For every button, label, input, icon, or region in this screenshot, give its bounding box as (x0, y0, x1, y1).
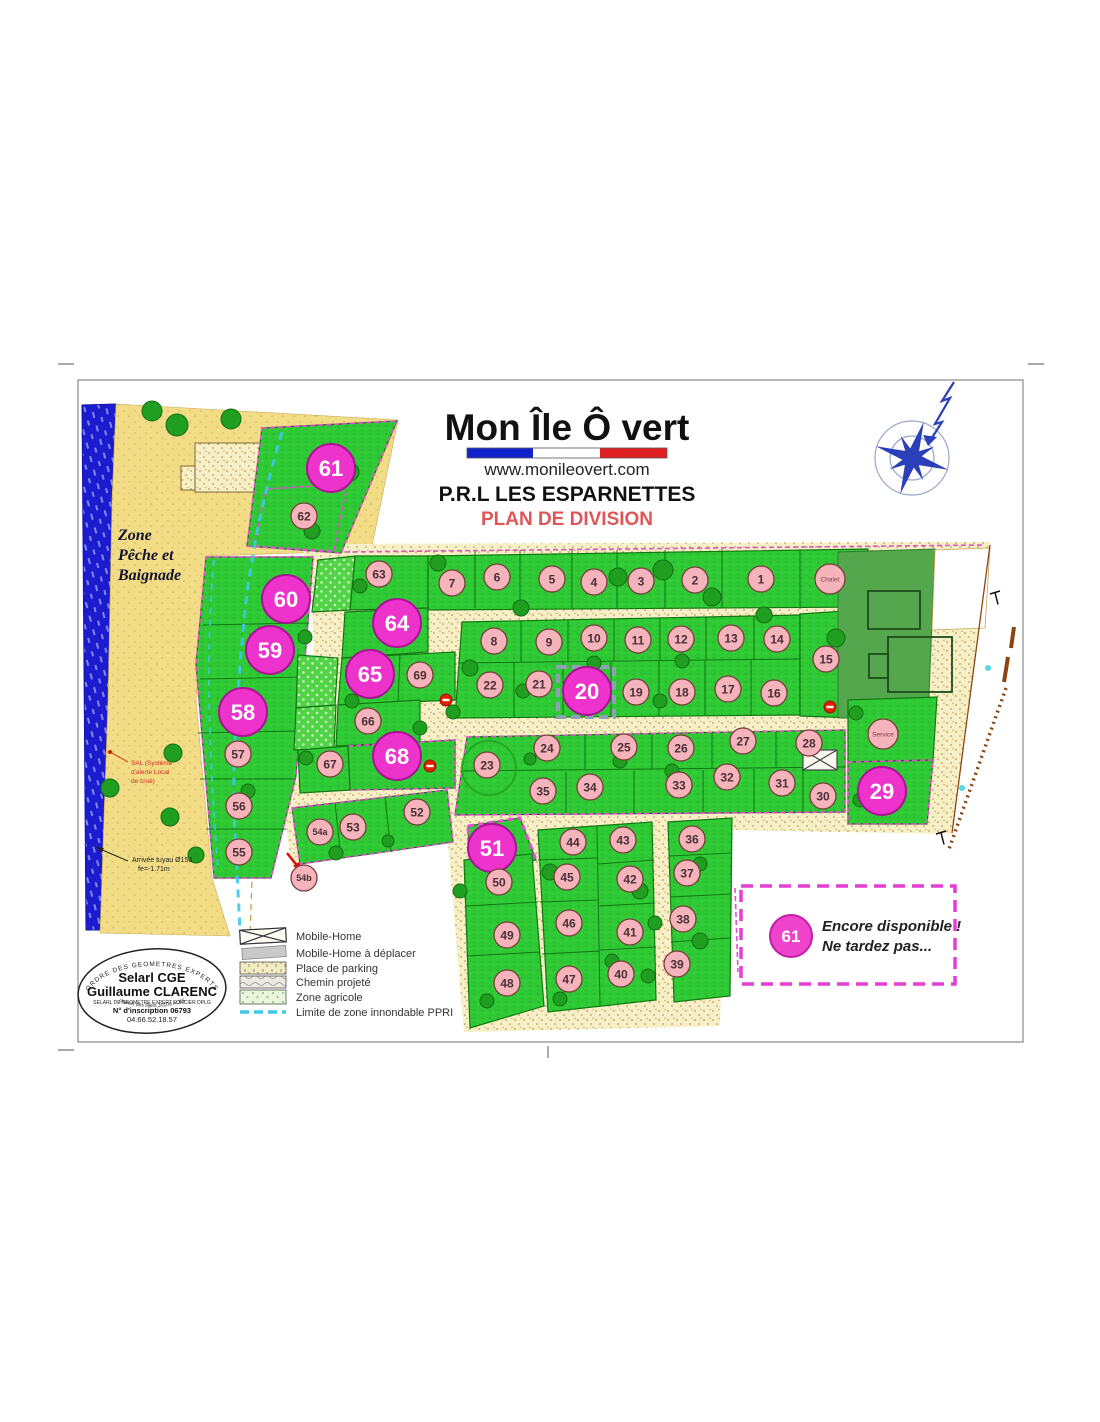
lot-57[interactable]: 57 (225, 741, 251, 767)
svg-text:29: 29 (870, 779, 894, 804)
available-lot-number: 61 (782, 927, 801, 946)
lot-50[interactable]: 50 (486, 869, 512, 895)
lot-65[interactable]: 65 (346, 650, 394, 698)
subtitle-label: P.R.L LES ESPARNETTES (439, 483, 696, 506)
svg-text:10: 10 (587, 632, 601, 646)
tree-icon (298, 630, 312, 644)
tree-icon (675, 654, 689, 668)
svg-text:41: 41 (623, 926, 637, 940)
lot-36[interactable]: 36 (679, 826, 705, 852)
legend-label: Chemin projeté (296, 977, 371, 989)
svg-text:62: 62 (297, 510, 311, 524)
lot-19[interactable]: 19 (623, 679, 649, 705)
legend-label: Mobile-Home (296, 931, 361, 943)
lot-60[interactable]: 60 (262, 575, 310, 623)
tree-icon (756, 607, 772, 623)
svg-text:Selarl CGE: Selarl CGE (118, 970, 186, 985)
lot-25[interactable]: 25 (611, 734, 637, 760)
lot-4[interactable]: 4 (581, 569, 607, 595)
svg-text:50: 50 (492, 876, 506, 890)
lot-10[interactable]: 10 (581, 625, 607, 651)
availability-box[interactable]: 61 Encore disponible ! Ne tardez pas... (741, 886, 961, 984)
lot-16[interactable]: 16 (761, 680, 787, 706)
svg-text:30: 30 (816, 790, 830, 804)
lot-58[interactable]: 58 (219, 688, 267, 736)
svg-text:58: 58 (231, 700, 255, 725)
svg-text:27: 27 (736, 735, 750, 749)
legend-swatch-chemin (240, 976, 286, 988)
svg-text:6: 6 (494, 571, 501, 585)
availability-line1: Encore disponible ! (822, 918, 961, 935)
plan-label: PLAN DE DIVISION (481, 509, 653, 530)
lot-54a[interactable]: 54a (307, 819, 333, 845)
svg-text:65: 65 (358, 662, 382, 687)
tree-icon (101, 779, 119, 797)
lot-8[interactable]: 8 (481, 628, 507, 654)
tree-icon (641, 969, 655, 983)
lot-2[interactable]: 2 (682, 567, 708, 593)
tree-icon (692, 933, 708, 949)
svg-text:17: 17 (721, 683, 735, 697)
tree-icon (827, 629, 845, 647)
svg-text:56: 56 (232, 800, 246, 814)
legend-swatch-parking (240, 962, 286, 974)
svg-text:54b: 54b (296, 873, 312, 883)
agri-patch-3 (294, 705, 336, 750)
road-sign-icon (440, 694, 452, 706)
svg-text:1: 1 (758, 573, 765, 587)
svg-text:21: 21 (532, 678, 546, 692)
lot-33[interactable]: 33 (666, 772, 692, 798)
lot-55[interactable]: 55 (226, 839, 252, 865)
lot-59[interactable]: 59 (246, 626, 294, 674)
lot-47[interactable]: 47 (556, 966, 582, 992)
lot-38[interactable]: 38 (670, 906, 696, 932)
svg-text:57: 57 (231, 748, 245, 762)
svg-text:de crue): de crue) (131, 778, 155, 785)
lot-29[interactable]: 29 (858, 767, 906, 815)
svg-text:67: 67 (323, 758, 337, 772)
tree-icon (166, 414, 188, 436)
lot-53[interactable]: 53 (340, 814, 366, 840)
lot-1[interactable]: 1 (748, 566, 774, 592)
svg-text:60: 60 (274, 587, 298, 612)
svg-text:39: 39 (670, 958, 684, 972)
svg-text:Guillaume CLARENC: Guillaume CLARENC (87, 984, 218, 999)
tree-icon (430, 555, 446, 571)
lot-37[interactable]: 37 (674, 860, 700, 886)
lot-35[interactable]: 35 (530, 778, 556, 804)
svg-text:2: 2 (692, 574, 699, 588)
lot-34[interactable]: 34 (577, 774, 603, 800)
svg-text:49: 49 (500, 929, 514, 943)
lot-52[interactable]: 52 (404, 799, 430, 825)
svg-text:18: 18 (675, 686, 689, 700)
svg-text:63: 63 (372, 568, 386, 582)
tree-icon (653, 560, 673, 580)
svg-text:14: 14 (770, 633, 784, 647)
tree-icon (382, 835, 394, 847)
svg-text:Chalet: Chalet (821, 577, 840, 584)
lot-44[interactable]: 44 (560, 829, 586, 855)
legend-label: Mobile-Home à déplacer (296, 948, 416, 960)
svg-text:68: 68 (385, 744, 409, 769)
utility-dot (985, 665, 991, 671)
road-sign-icon (424, 760, 436, 772)
svg-text:22: 22 (483, 679, 497, 693)
lot-41[interactable]: 41 (617, 919, 643, 945)
french-flag-bar (467, 448, 667, 458)
svg-text:48: 48 (500, 977, 514, 991)
tree-icon (513, 600, 529, 616)
svg-text:24: 24 (540, 742, 554, 756)
svg-text:36: 36 (685, 833, 699, 847)
tree-icon (329, 846, 343, 860)
svg-text:15: 15 (819, 653, 833, 667)
lot-27[interactable]: 27 (730, 728, 756, 754)
svg-text:26: 26 (674, 742, 688, 756)
lot-62[interactable]: 62 (291, 503, 317, 529)
svg-text:45: 45 (560, 871, 574, 885)
brand-title: Mon Île Ô vert (445, 406, 690, 448)
svg-text:04.66.52.18.57: 04.66.52.18.57 (127, 1015, 177, 1024)
svg-text:Service: Service (872, 732, 894, 739)
lot-14[interactable]: 14 (764, 626, 790, 652)
svg-text:46: 46 (562, 917, 576, 931)
availability-line2: Ne tardez pas... (822, 938, 932, 955)
lot-7[interactable]: 7 (439, 570, 465, 596)
svg-text:23: 23 (480, 759, 494, 773)
svg-text:Baignade: Baignade (117, 567, 181, 584)
plan-page: 6160595864656820512962637654321Chalet891… (0, 0, 1100, 1422)
utility-dot (959, 785, 965, 791)
tree-icon (609, 568, 627, 586)
lot-21[interactable]: 21 (526, 671, 552, 697)
lot-6[interactable]: 6 (484, 564, 510, 590)
svg-text:66: 66 (361, 715, 375, 729)
tree-icon (446, 705, 460, 719)
lot-chalet[interactable]: Chalet (815, 564, 845, 594)
svg-text:55: 55 (232, 846, 246, 860)
tree-icon (221, 409, 241, 429)
svg-text:20: 20 (575, 679, 599, 704)
lot-69[interactable]: 69 (407, 662, 433, 688)
lot-42[interactable]: 42 (617, 866, 643, 892)
lot-63[interactable]: 63 (366, 561, 392, 587)
tree-icon (648, 916, 662, 930)
agri-patch-2 (296, 655, 338, 708)
svg-text:42: 42 (623, 873, 637, 887)
lot-28[interactable]: 28 (796, 730, 822, 756)
svg-text:33: 33 (672, 779, 686, 793)
lot-67[interactable]: 67 (317, 751, 343, 777)
lot-32[interactable]: 32 (714, 764, 740, 790)
svg-text:9: 9 (546, 636, 553, 650)
lot-54b[interactable]: 54b (291, 865, 317, 891)
svg-text:Arrivée tuyau Ø150: Arrivée tuyau Ø150 (132, 857, 192, 864)
lot-30[interactable]: 30 (810, 783, 836, 809)
svg-text:61: 61 (319, 456, 343, 481)
svg-text:52: 52 (410, 806, 424, 820)
tree-icon (462, 660, 478, 676)
lot-24[interactable]: 24 (534, 735, 560, 761)
legend-swatch-agricole (240, 990, 286, 1004)
lot-46[interactable]: 46 (556, 910, 582, 936)
svg-text:d'alerte Local: d'alerte Local (131, 769, 170, 776)
tree-icon (413, 721, 427, 735)
lot-64[interactable]: 64 (373, 599, 421, 647)
svg-text:38: 38 (676, 913, 690, 927)
svg-text:43: 43 (616, 834, 630, 848)
lot-66[interactable]: 66 (355, 708, 381, 734)
lot-12[interactable]: 12 (668, 626, 694, 652)
svg-text:53: 53 (346, 821, 360, 835)
svg-text:28: 28 (802, 737, 816, 751)
lot-5[interactable]: 5 (539, 566, 565, 592)
tree-icon (353, 579, 367, 593)
lot-22[interactable]: 22 (477, 672, 503, 698)
svg-text:47: 47 (562, 973, 576, 987)
svg-text:5: 5 (549, 573, 556, 587)
tree-icon (703, 588, 721, 606)
agri-patch-1 (312, 556, 355, 612)
svg-text:12: 12 (674, 633, 688, 647)
lot-48[interactable]: 48 (494, 970, 520, 996)
lot-49[interactable]: 49 (494, 922, 520, 948)
lot-20[interactable]: 20 (563, 667, 611, 715)
lot-56[interactable]: 56 (226, 793, 252, 819)
legend-label: Place de parking (296, 963, 378, 975)
lot-45[interactable]: 45 (554, 864, 580, 890)
website-label[interactable]: www.monileovert.com (483, 460, 649, 479)
tree-icon (524, 753, 536, 765)
tree-icon (345, 694, 359, 708)
svg-text:4: 4 (591, 576, 598, 590)
svg-text:19: 19 (629, 686, 643, 700)
lot-service[interactable]: Service (868, 719, 898, 749)
svg-text:35: 35 (536, 785, 550, 799)
svg-text:7: 7 (449, 577, 456, 591)
svg-text:37: 37 (680, 867, 694, 881)
lot-31[interactable]: 31 (769, 770, 795, 796)
svg-text:32: 32 (720, 771, 734, 785)
svg-text:69: 69 (413, 669, 427, 683)
tree-icon (453, 884, 467, 898)
lot-39[interactable]: 39 (664, 951, 690, 977)
legend-label: Limite de zone innondable PPRI (296, 1007, 453, 1019)
svg-text:31: 31 (775, 777, 789, 791)
lot-13[interactable]: 13 (718, 625, 744, 651)
svg-text:Pêche et: Pêche et (117, 547, 174, 564)
white-parcel (932, 548, 990, 630)
svg-text:64: 64 (385, 611, 410, 636)
site-plan-svg: 6160595864656820512962637654321Chalet891… (0, 0, 1100, 1422)
lot-15[interactable]: 15 (813, 646, 839, 672)
lot-51[interactable]: 51 (468, 824, 516, 872)
tree-icon (142, 401, 162, 421)
tree-icon (161, 808, 179, 826)
lot-9[interactable]: 9 (536, 629, 562, 655)
svg-text:59: 59 (258, 638, 282, 663)
lot-11[interactable]: 11 (625, 627, 651, 653)
svg-text:fe=-1.71m: fe=-1.71m (138, 866, 170, 873)
road-sign-icon (824, 701, 836, 713)
lot-26[interactable]: 26 (668, 735, 694, 761)
tree-icon (849, 706, 863, 720)
svg-text:25: 25 (617, 741, 631, 755)
svg-text:54a: 54a (312, 827, 328, 837)
lot-43[interactable]: 43 (610, 827, 636, 853)
svg-text:11: 11 (632, 634, 645, 648)
svg-text:Zone: Zone (117, 527, 152, 544)
svg-text:SAL (Système: SAL (Système (131, 760, 173, 767)
lot-23[interactable]: 23 (474, 752, 500, 778)
lot-18[interactable]: 18 (669, 679, 695, 705)
tree-icon (653, 694, 667, 708)
svg-text:40: 40 (614, 968, 628, 982)
svg-text:13: 13 (724, 632, 738, 646)
tree-icon (299, 751, 313, 765)
tree-icon (480, 994, 494, 1008)
svg-text:3: 3 (638, 575, 645, 589)
lot-68[interactable]: 68 (373, 732, 421, 780)
svg-text:16: 16 (767, 687, 781, 701)
svg-text:51: 51 (480, 836, 504, 861)
legend-label: Zone agricole (296, 992, 363, 1004)
parking-annex (181, 466, 195, 490)
legend-swatch-mobile-home (240, 928, 287, 944)
lot-17[interactable]: 17 (715, 676, 741, 702)
lot-61[interactable]: 61 (307, 444, 355, 492)
lot-3[interactable]: 3 (628, 568, 654, 594)
tree-icon (553, 992, 567, 1006)
svg-text:34: 34 (583, 781, 597, 795)
lot-40[interactable]: 40 (608, 961, 634, 987)
svg-text:44: 44 (566, 836, 580, 850)
svg-text:8: 8 (491, 635, 498, 649)
